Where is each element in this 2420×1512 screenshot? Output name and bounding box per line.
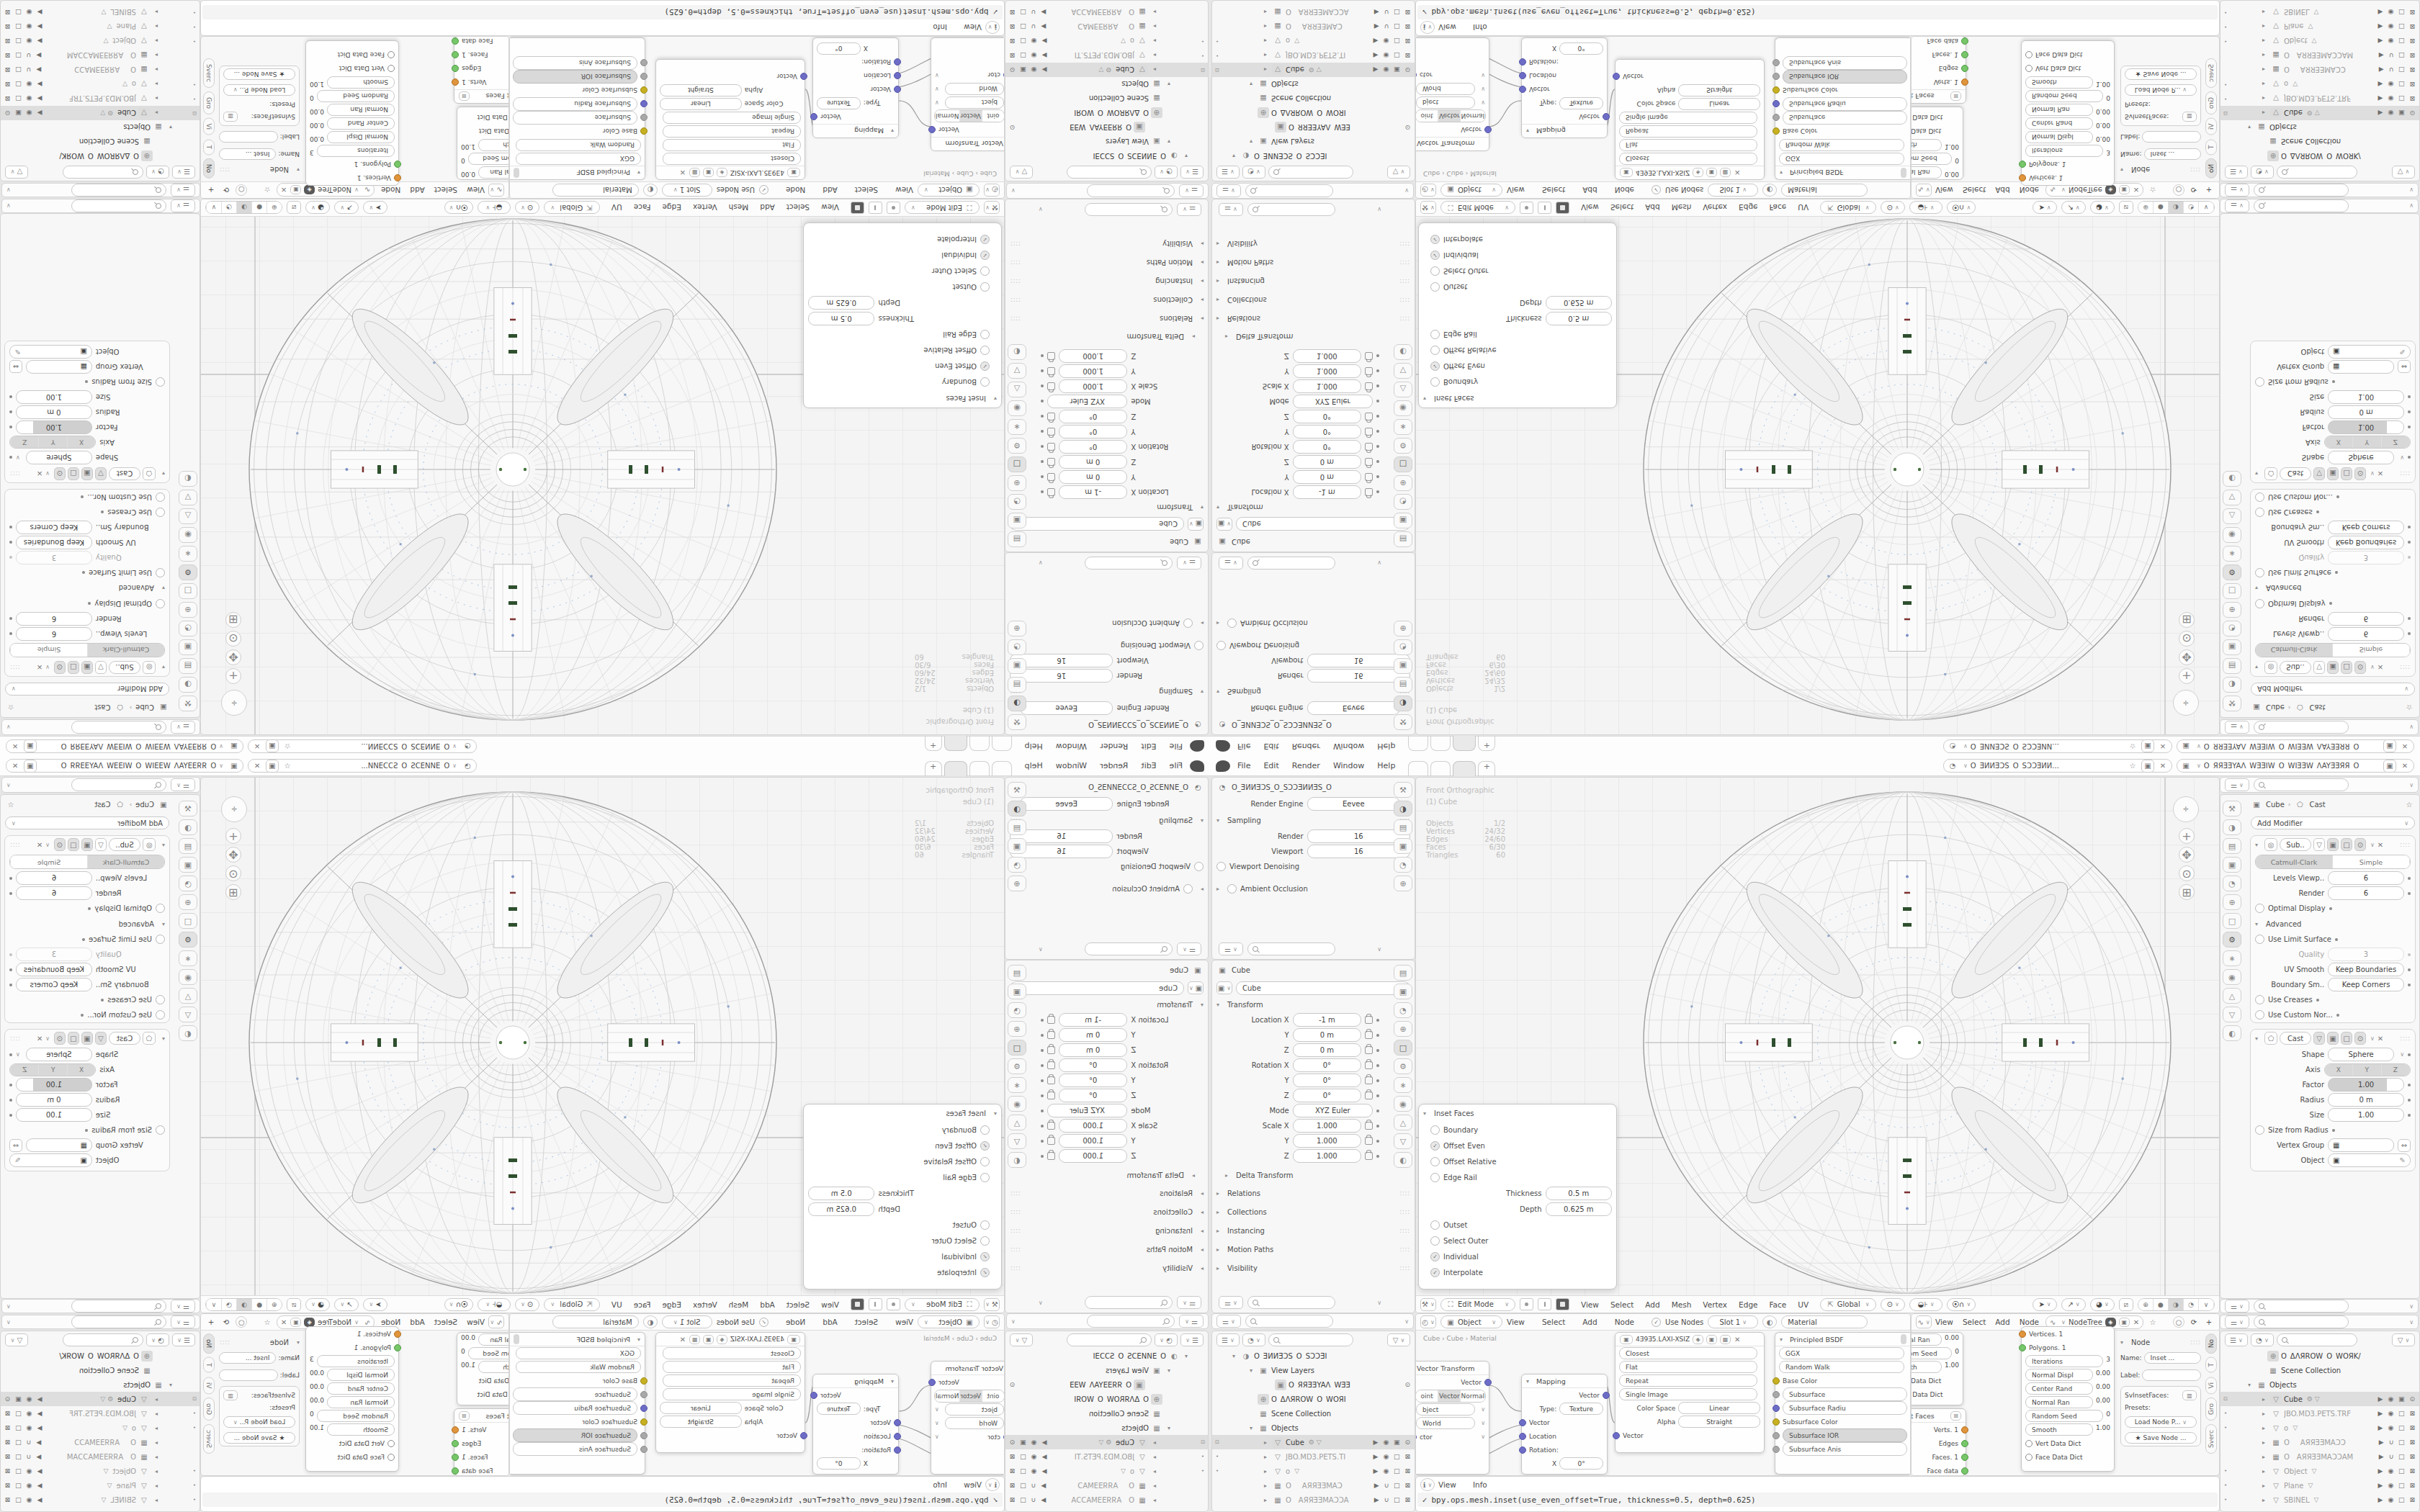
modifier-name-field[interactable]: Cast [109,1032,140,1045]
editor-type-icon[interactable]: ⚒∨ [1420,1298,1436,1311]
expand-arrow[interactable]: ▸ [150,1425,158,1431]
grid-icon[interactable]: ⊞ [1950,1411,1961,1421]
editor-type-icon[interactable]: ⚌∨ [1179,1315,1204,1328]
sampling-panel-header[interactable]: ▾ Sampling :::: [1212,683,1415,701]
overlays-toggle[interactable]: ↗∨ [2061,1298,2086,1311]
node-row[interactable]: Vector [1522,1416,1607,1429]
node-row[interactable]: Face Data Dict [1911,1387,1963,1401]
viewport-display-icon[interactable]: □ [2341,1032,2352,1045]
nav-gizmo[interactable]: ✛ [2173,796,2199,822]
view-layer-selector[interactable]: ▣∨ O_ЯЯƎƎYAΛ_WƎƎIW_O_WIƎƎW_ΛAYƎƎЯЯ_O ▣ ✕ [2177,739,2414,753]
operator-panel-header[interactable]: ▾ Inset Faces [804,1104,1001,1122]
search-input[interactable] [1268,1333,1353,1346]
node-mapping[interactable]: ▾Mapping Vector Type:Texture Vector [812,37,899,138]
expand-arrow[interactable]: ▸ [150,9,158,16]
shading-wireframe[interactable]: ⊕ [266,1299,282,1310]
expand-arrow[interactable]: ▸ [1264,1497,1272,1503]
row-label[interactable]: O_ЯЯƎƎYAΛ_WƎƎ [1070,1381,1131,1389]
transform-row[interactable]: Rotation X 0° [1036,1058,1208,1073]
pin-icon[interactable]: ☆ [282,760,293,772]
node-row[interactable]: Center Rand0.00 [306,117,398,130]
axis-value[interactable]: XYZ Euler [1293,1104,1373,1117]
display-mode-dropdown[interactable]: ☰∨ [1180,1333,1204,1346]
close-icon[interactable]: ✕ [1734,167,1741,179]
operator-panel-header[interactable]: ▾ Inset Faces [1419,390,1616,408]
axis-value[interactable]: 1.000 [1059,379,1127,393]
socket-icon[interactable] [1484,1379,1492,1386]
catmull-clark-button[interactable]: Catmull-Clark [2256,644,2333,657]
row-label[interactable]: Scene Collection [1271,1410,1331,1418]
chevron-down-icon[interactable]: ∨ [1039,560,1043,567]
node-row[interactable]: Face data [1911,1464,1966,1476]
xray-icon[interactable]: ⧄ [287,202,301,215]
row-visibility-icons[interactable]: ▶ ∪ □ ⊠ [1374,1482,1412,1489]
animate-dot-icon[interactable] [1041,491,1044,494]
filter-toggle-icon[interactable]: ⚌∨ [1219,1296,1243,1309]
transform-row[interactable]: Z 0 m [1212,454,1384,469]
simple-button[interactable]: Simple [2333,644,2410,657]
drag-dots-icon[interactable]: :::: [1010,316,1021,323]
overlays-toggle[interactable]: ↗∨ [334,202,359,215]
axis-value[interactable]: -1 m [1059,1013,1127,1027]
axis-value[interactable]: 0 m [1293,470,1361,484]
socket-icon[interactable] [2025,1454,2033,1461]
node-row[interactable]: Vector [931,123,1005,137]
properties-tab[interactable]: ◐ [1008,1152,1026,1168]
grid-toggle-icon[interactable]: ⊞ [2179,884,2195,900]
vertex-group-row[interactable]: Vertex Group ▦ ⇔ [5,1138,169,1153]
socket-icon[interactable] [452,1426,459,1434]
transform-row[interactable]: Y 0° [1212,424,1384,439]
transform-row[interactable]: Z 1.000 [1036,348,1208,364]
expand-arrow[interactable]: ▸ [150,1439,158,1446]
properties-tab[interactable]: ◉ [1394,400,1412,416]
row-visibility-icons[interactable]: ▶ ◉ □ ⊠ [2378,23,2416,30]
search-input[interactable] [2254,778,2349,791]
browse-icon[interactable]: ▦ [689,168,700,178]
outliner-row[interactable]: ⊡ ▸ ▽ Cube ⚙ ▽ ▶ ◉ ▣ ⊙ [2220,1392,2419,1406]
camera-view-icon[interactable]: ⊙ [2179,865,2195,881]
node-row[interactable]: Color SpaceLinear [656,97,805,111]
expand-arrow[interactable]: ▸ [1264,53,1272,59]
expand-arrow[interactable]: ▾ [1162,1425,1170,1431]
extras-dropdown[interactable]: ∨ [2370,1035,2375,1042]
pin-icon[interactable]: ☆ [282,741,293,752]
display-mode-dropdown[interactable]: ☰∨ [1216,166,1240,179]
editor-type-icon[interactable]: ⚌∨ [1216,184,1241,197]
row-visibility-icons[interactable]: ▶ ∪ □ ⊠ [2379,1453,2416,1460]
slot-selector[interactable]: Slot 1∨ [1708,1315,1758,1328]
modifier-row-value[interactable]: 6 [16,627,92,641]
simple-button[interactable]: Simple [2333,855,2410,868]
shading-wireframe[interactable]: ⊕ [2138,202,2154,214]
vertex-group-field[interactable]: ▦ [26,1138,92,1152]
object-name-field[interactable]: Cube [1010,518,1184,531]
info-menu-info[interactable]: Info [1473,1480,1487,1489]
node-row[interactable]: ctor∨ [1415,1430,1489,1444]
browse-icon[interactable]: ▦ [689,1335,700,1344]
properties-tab[interactable]: ◉ [2223,527,2241,543]
properties-tab[interactable]: ◉ [1008,1096,1026,1112]
outliner-row[interactable]: • ▸ ▽ JBO.MD3.PETS.TI ▶ ◉ □ ⊠ [1005,48,1208,63]
operator-option-row[interactable]: Offset Relative [1419,343,1616,359]
vp-menu-select[interactable]: Select [1610,204,1633,212]
transform-row[interactable]: Z 1.000 [1036,1148,1208,1164]
shape-value[interactable]: Sphere [2328,1048,2394,1061]
modifier-row-value[interactable]: Keep Corners [16,521,92,534]
lock-icon[interactable] [1365,1137,1373,1145]
outliner-row[interactable]: ▣ O_ЯЯƎƎYAΛ_WƎƎ ⊙ [1005,120,1208,135]
lock-icon[interactable] [1047,488,1055,496]
close-icon[interactable]: ✕ [9,760,21,772]
outliner-row[interactable]: ▣ O_ЯЯƎƎYAΛ_WƎƎ ⊙ [1212,120,1415,135]
editor-type-icon[interactable]: ⚒∨ [984,1298,1000,1311]
outliner-row[interactable]: ▸ ▦ O__AЯЯƎƎMAƆƆA ▶ ∪ □ ⊠ [1005,1493,1208,1507]
axis-value[interactable]: 0° [1293,1058,1361,1072]
property-row[interactable]: Viewport 16 [1212,653,1415,668]
zoom-icon[interactable]: + [225,668,241,684]
node-row[interactable]: Flat [1615,138,1764,152]
vp-menu-uv[interactable]: UV [1798,204,1809,212]
outliner-row[interactable]: ▦ Scene Collection [1212,1406,1415,1421]
socket-icon[interactable] [452,66,459,73]
shading-solid[interactable]: ● [2154,202,2169,214]
shield-icon[interactable]: ◈ [717,168,727,178]
node-row[interactable]: Center Rand0.00 [2022,1382,2114,1395]
node-vector-transform[interactable]: Vector Transform Vector ointVectorNormal… [931,1361,1005,1475]
drag-dots-icon[interactable]: :::: [1399,1228,1410,1234]
info-menu-view[interactable]: View [1438,23,1456,32]
vp-menu-face[interactable]: Face [1770,204,1787,212]
vp-menu-add[interactable]: Add [1645,204,1659,212]
modifier-row-value[interactable]: Keep Boundaries [16,536,92,549]
advanced-section-header[interactable]: ▾Advanced [5,916,169,932]
modifier-row-value[interactable]: 6 [2328,886,2404,900]
pivot-selector[interactable]: ⊙∨ [515,202,539,215]
socket-icon[interactable] [1773,1446,1780,1453]
expand-arrow[interactable]: ▾ [1250,81,1258,88]
option-value[interactable]: 0.625 m [1546,1202,1612,1216]
lock-icon[interactable] [1365,1076,1373,1084]
lock-icon[interactable] [1047,1076,1055,1084]
close-icon[interactable]: ✕ [251,741,263,752]
expand-arrow[interactable]: ▸ [150,1410,158,1417]
slot-selector[interactable]: Slot 1∨ [662,1315,712,1328]
row-label[interactable]: Objects [1271,81,1299,89]
outliner-row[interactable]: ⊡ ▸ ▽ Cube ⚙ ▽ ▶ ◉ ▣ ⊙ [1212,1435,1415,1449]
properties-tab[interactable]: ⊕ [179,894,197,910]
node-row[interactable]: Subsurface Color [1775,1415,1911,1428]
transform-row[interactable]: Y 0° [1036,424,1208,439]
outliner-row[interactable]: ▾ ▦ Objects [1212,77,1415,91]
modifier-row-value[interactable]: 0 m [16,405,92,419]
advanced-section-header[interactable]: ▾Advanced [2251,580,2415,596]
lock-icon[interactable] [1365,367,1373,375]
zoom-icon[interactable]: + [2179,828,2195,844]
row-label[interactable]: View Layers [1106,1367,1149,1374]
pin-icon[interactable]: ☆ [2147,1316,2159,1328]
operator-option-row[interactable]: Boundary [804,1122,1001,1138]
node-row[interactable]: Subsurface Radiu [509,97,645,111]
outliner-row[interactable]: • ▸ ▽ Plane ▽ ▶ ◉ □ ⊠ [2220,19,2419,34]
animate-dot-icon[interactable] [1041,415,1044,418]
property-row[interactable]: Render 16 [1212,829,1415,844]
animate-dot-icon[interactable] [1041,1064,1044,1067]
properties-tab[interactable]: ▤ [2223,658,2241,674]
row-visibility-icons[interactable]: ▶ ∪ □ ⊠ [4,1439,41,1446]
modifier-row[interactable]: Levels Viewp.. 6 [5,870,169,886]
advanced-section-header[interactable]: ▾Advanced [5,580,169,596]
chevron-down-icon[interactable]: ∨ [1011,188,1016,194]
vt-type-switch[interactable]: ointVectorNormal [934,1390,1005,1403]
option-value[interactable]: 0.625 m [808,297,874,310]
socket-icon[interactable] [640,1418,647,1426]
node-image-texture[interactable]: ▣ 4Ǝ9Ǝ5.LAXI-XSIZ ◈ ▣ ▦ ✕ Closest [1615,1332,1765,1453]
animate-dot-icon[interactable] [1376,1110,1379,1112]
node-row[interactable]: Vector [1522,1388,1607,1402]
render-display-icon[interactable]: ⊙ [2354,467,2366,480]
node-row[interactable]: Single Image [656,111,805,125]
edge-select-button[interactable] [1538,1298,1551,1310]
shape-value[interactable]: Sphere [26,451,92,464]
expand-arrow[interactable]: ▸ [150,1468,158,1475]
axis-value[interactable]: 1.000 [1059,1119,1127,1133]
node-row[interactable]: Smooth1.00 [306,76,398,89]
axis-value[interactable]: 0° [1293,1089,1361,1102]
operator-panel-header[interactable]: ▾ Inset Faces [804,390,1001,408]
checkbox[interactable] [1430,1125,1440,1135]
outliner-row[interactable]: ▾ ▣ View Layers [1212,135,1415,149]
modifier-row-value[interactable]: 3 [16,948,92,961]
xray-icon[interactable]: ⧄ [2119,202,2133,215]
use-nodes-checkbox[interactable]: ✓ [759,1318,768,1327]
search-input[interactable] [2254,1315,2349,1328]
display-mode-dropdown[interactable]: ☰∨ [1216,1333,1240,1346]
proportional-edit-toggle[interactable]: ⦿∩∨ [444,202,473,215]
row-visibility-icons[interactable]: ▶ ◉ ▣ ⊙ [1373,66,1412,73]
modifier-row[interactable]: Size from Radius [5,1122,169,1138]
node-row[interactable]: Type:Texture [813,1402,898,1416]
node-mapping[interactable]: ▾Mapping Vector Type:Texture Vector [1521,37,1608,138]
animate-dot-icon[interactable] [1041,1094,1044,1097]
node-row[interactable]: Repeat [1615,125,1764,138]
vertex-select-button[interactable] [1520,1298,1533,1310]
shading-mode-switch[interactable]: ⊕●◑◔∨ [205,1298,282,1311]
drag-dots-icon[interactable]: :::: [1010,1265,1021,1272]
menu-edit[interactable]: Edit [1263,742,1278,751]
info-log-row[interactable]: ✓ bpy.ops.mesh.inset(use_even_offset=Tru… [202,5,1003,19]
chevron-down-icon[interactable]: ∨ [6,1303,11,1310]
socket-icon[interactable] [2019,175,2026,182]
display-mode-dropdown[interactable]: ☰∨ [2225,1333,2248,1346]
drag-dots-icon[interactable]: :::: [1010,1209,1021,1215]
row-label[interactable]: O_ΔΛЯROW_O_WOЯK/ [2281,153,2361,161]
menu-render[interactable]: Render [1100,742,1128,751]
animate-dot-icon[interactable] [1041,1125,1044,1128]
sidebar-tab[interactable]: Gro [2205,91,2217,114]
expand-arrow[interactable]: ▸ [1148,1497,1156,1503]
properties-tab[interactable]: □ [2223,583,2241,599]
expand-arrow[interactable]: ▸ [2262,1410,2270,1417]
expand-arrow[interactable]: ▸ [1264,1482,1272,1489]
expand-arrow[interactable]: ▸ [150,38,158,45]
edit-mode-display-icon[interactable]: ▽ [95,838,107,851]
image-name[interactable]: 4Ǝ9Ǝ5.LAXI-XSIZ [1636,1336,1690,1343]
snap-toggle[interactable]: ◒⊦∨ [478,1298,511,1311]
checkbox[interactable] [156,904,165,913]
checkbox[interactable] [2255,492,2264,502]
row-visibility-icons[interactable]: ▶ ∪ □ ⊠ [2379,52,2416,59]
close-icon[interactable]: ✕ [251,760,263,772]
sh-menu-add[interactable]: Add [823,186,837,194]
collapsed-panel-header[interactable]: ▸ Collections :::: [1212,291,1415,310]
search-input[interactable] [1247,557,1335,570]
expand-arrow[interactable]: ▾ [1162,81,1170,88]
operator-option-row[interactable]: Outset [1419,279,1616,295]
sidebar-tab[interactable]: Vi [203,1377,215,1394]
sverchok-canvas[interactable]: Normal Ran0.00 Random Seed0 Smooth1.00 V… [201,1331,508,1475]
shading-mode-switch[interactable]: ⊕●◑◔∨ [2138,202,2215,215]
node-row[interactable]: Normal Ran0.00 [306,103,398,117]
grid-icon[interactable]: ⊞ [459,1411,470,1421]
xray-toggle[interactable]: ◕∨ [2090,1298,2115,1311]
info-log-row[interactable]: ✓ bpy.ops.mesh.inset(use_even_offset=Tru… [202,1493,1003,1507]
checkbox[interactable] [980,346,990,356]
outliner-row[interactable]: • ▸ ▽ JBO.MD3.PETS.TRF ▶ ◉ □ ⊠ [1,91,200,106]
modifier-row-value[interactable]: 0 m [2328,1093,2404,1107]
row-visibility-icons[interactable]: ▶ ∪ □ ⊠ [1374,9,1412,16]
search-input[interactable] [2277,1333,2357,1346]
node-row[interactable]: Closest [1615,1346,1764,1360]
chevron-down-icon[interactable]: ∨ [2409,1303,2414,1310]
lock-icon[interactable] [1365,382,1373,390]
checkbox[interactable] [1183,884,1193,894]
node-row[interactable]: Iterations3 [2022,144,2114,158]
outliner-row[interactable]: ⊡ ▸ ▽ Cube ⚙ ▽ ▶ ◉ ▣ ⊙ [1,106,200,120]
socket-icon[interactable] [640,1377,647,1385]
properties-tab[interactable]: ∗ [1394,1077,1412,1093]
row-label[interactable]: O_ƎИИƎƆЅ_O_ЅƆƆƎІ [1093,153,1166,161]
socket-icon[interactable] [452,1467,459,1475]
properties-tab[interactable]: ∗ [2223,950,2241,966]
node-label-field[interactable] [219,1369,278,1381]
realtime-display-icon[interactable]: ▣ [2327,661,2339,674]
editor-type-icon[interactable]: ∿∨ [1916,184,1932,197]
object-field[interactable]: ▣✎ [2328,1153,2411,1167]
operator-option-row[interactable]: Offset Relative [804,1153,1001,1169]
chevron-down-icon[interactable]: ∨ [2409,1319,2414,1326]
filter-toggle-icon[interactable]: ⚌∨ [171,778,195,791]
node-row[interactable]: Subsurface IOR [1775,70,1911,84]
properties-tab[interactable]: △ [2223,988,2241,1004]
properties-tab[interactable]: ⚒ [1394,782,1412,798]
operator-option-row[interactable]: Depth 0.625 m [804,295,1001,311]
checkbox[interactable] [980,1268,990,1277]
axis-button[interactable]: Y [2353,1064,2381,1076]
sidebar-tab[interactable]: Sverc [2205,1424,2217,1454]
node-row[interactable]: Subsurface [1775,111,1911,125]
filter-funnel-icon[interactable]: ▽∨ [1010,166,1033,179]
node-row[interactable]: Normal Ran0.00 [2022,103,2114,117]
expand-arrow[interactable]: ▸ [150,67,158,73]
viewport-display-icon[interactable]: □ [68,661,79,674]
add-workspace-tab[interactable]: + [925,761,942,776]
properties-tab[interactable]: ▽ [179,1007,197,1022]
properties-tab[interactable]: ▣ [179,857,197,873]
node-row[interactable]: Face data [1911,36,1966,48]
socket-icon[interactable] [640,1405,647,1412]
checkbox[interactable] [980,362,990,372]
modifier-row[interactable]: Use Custom Nor... [5,490,169,505]
outliner-row[interactable]: ▦ Scene Collection [1212,91,1415,106]
row-visibility-icons[interactable]: ▶ ∪ □ ⊠ [2379,66,2416,73]
transform-row[interactable]: Location X -1 m [1212,485,1384,500]
row-label[interactable]: View Layers [1271,138,1314,146]
collapsed-panel-header[interactable]: ▸ Relations :::: [1005,310,1208,328]
node-row[interactable]: Location [1522,69,1607,83]
transform-row[interactable]: Location X -1 m [1212,1012,1384,1027]
row-visibility-icons[interactable]: ▶ ◉ □ ⊠ [4,1410,42,1417]
properties-tab[interactable]: ⚙ [179,932,197,948]
node-row[interactable]: GGX [509,1346,645,1360]
expand-arrow[interactable]: ▸ [150,1497,158,1503]
shield-icon[interactable]: ◈ [717,1335,727,1344]
checkbox[interactable] [1430,1141,1440,1151]
socket-icon[interactable] [2019,161,2026,168]
drag-dots-icon[interactable]: :::: [1399,1209,1410,1215]
outliner-row[interactable]: ⊕ O_ΔΛЯROW_O_WOЯI [1005,1392,1208,1406]
vp-menu-uv[interactable]: UV [611,204,622,212]
axis-value[interactable]: 0° [1293,1074,1361,1087]
modifier-row[interactable]: Levels Viewp.. 6 [2251,626,2415,642]
node-mapping[interactable]: ▾Mapping Vector Type:Texture Vector [1521,1374,1608,1475]
node-title[interactable]: Vector Transform [931,137,1005,150]
properties-tab[interactable]: ∗ [179,950,197,966]
properties-tab[interactable]: ◐ [2223,471,2241,487]
axis-value[interactable]: 1.000 [1293,1149,1361,1163]
axis-value[interactable]: -1 m [1293,1013,1361,1027]
render-engine-row[interactable]: Render Engine Eevee ∨ [1212,701,1415,716]
node-row[interactable]: Vert Data Dict [1911,1374,1963,1387]
mode-selector[interactable]: ⛶ Edit Mode ∨ [905,202,980,215]
sv-menu-view[interactable]: View [1935,186,1953,194]
shield-icon[interactable]: ◈ [1693,168,1703,178]
node-row[interactable]: Random Walk [509,138,645,152]
property-row[interactable]: Render 16 [1212,668,1415,683]
node-row[interactable]: Normal Ran0.00 [457,1333,509,1346]
row-label[interactable]: Object [2284,37,2308,45]
lock-icon[interactable] [1047,428,1055,436]
row-label[interactable]: O__AЯЯƎƎMAƆƆA [1071,1496,1134,1504]
node-row[interactable]: Repeat [1615,1374,1764,1387]
node-row[interactable]: Subsurface IOR [509,70,645,84]
transform-row[interactable]: Rotation X 0° [1212,1058,1384,1073]
transform-row[interactable]: Z 1.000 [1212,1148,1384,1164]
render-engine-value[interactable]: Eevee [1307,797,1401,811]
expand-arrow[interactable]: ▸ [1264,1454,1272,1460]
shield-icon[interactable]: ◈ [304,186,315,195]
node-row[interactable]: Base Color [509,125,645,138]
node-row[interactable]: Vertices. 1 [306,1327,398,1341]
outliner-row[interactable]: ▸ ▦ O__AЯЯƎƎMAƆƆAM ▶ ∪ □ ⊠ [1,48,200,63]
search-input[interactable] [71,184,166,197]
close-icon[interactable]: ✕ [2399,760,2411,772]
outliner-row[interactable]: • ▸ ▽ Object ▽ ▶ ◉ □ ⊠ [1,1464,200,1478]
row-label[interactable]: O_ЯЯƎƎYAΛ_WƎƎ [1289,1381,1350,1389]
properties-tab[interactable]: ∗ [1008,419,1026,435]
outliner-row[interactable]: • ▸ ▽ o ▽ ▶ ◉ □ ⊠ [1,1421,200,1435]
node-row[interactable]: X0° [813,42,898,55]
